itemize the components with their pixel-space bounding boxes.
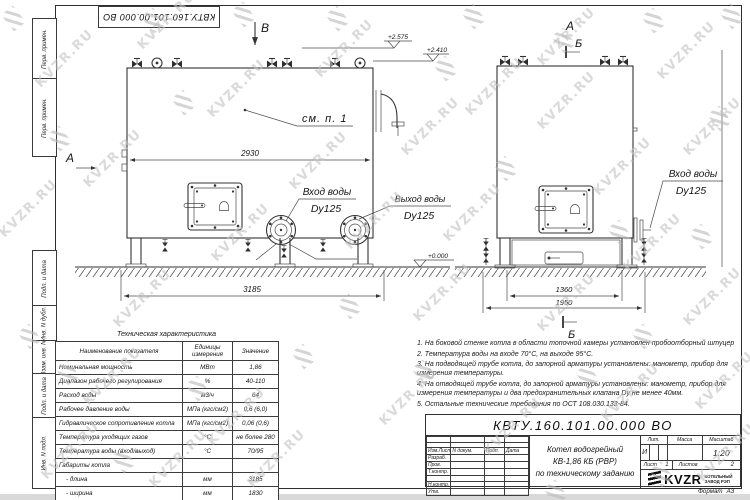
supports-front (126, 238, 373, 267)
document-title-line: по техническому заданию (536, 468, 635, 480)
bracket (122, 150, 127, 157)
water-outlet-flange (341, 216, 370, 245)
margin-cell-4: Инв. N дубл. (32, 305, 57, 342)
drain-valve-icon (320, 240, 326, 252)
valve-icon (518, 57, 528, 66)
margin-label: Взам. инв. N (42, 340, 48, 375)
rev-header: Изм.Лист (427, 448, 451, 455)
cell (233, 459, 279, 473)
format-label: Формат (698, 488, 723, 495)
cell: % (183, 375, 233, 389)
table-row: Номинальная мощностьМВт1,86 (56, 361, 279, 375)
inlet-label: Вход воды (303, 187, 352, 198)
format-value: А3 (727, 488, 735, 495)
dim-2930-label: 2930 (240, 149, 259, 158)
table-row: Габариты котла (56, 459, 279, 473)
margin-cell-3: Подп. и дата (32, 250, 57, 307)
revision-table: Изм.Лист N докум. Подп. Дата Разраб. Про… (426, 436, 529, 496)
role-label: Т.контр. (427, 469, 451, 476)
valve-icon (500, 57, 510, 66)
cell (183, 459, 233, 473)
top-designation-box: КВТУ.160.101.00.000 ВО (98, 6, 220, 28)
cell: мм (183, 473, 233, 487)
valve-icon (600, 57, 610, 66)
elevation-mid: +2.410 (373, 47, 449, 61)
drain-valve-icon (483, 239, 489, 251)
scale-header: Масштаб (703, 436, 740, 444)
technical-notes: 1. На боковой стенке котла в области топ… (417, 339, 741, 410)
rev-header: Подп. (484, 448, 504, 455)
table-row: Температура уходящих газов°Сне более 280 (56, 431, 279, 445)
section-b-marker-bottom: Б (563, 316, 577, 341)
dim-1360-label: 1360 (556, 285, 574, 294)
margin-label: Подп. и дата (42, 377, 48, 415)
view-b-label: В (261, 21, 269, 35)
inlet-label-side: Вход воды (669, 169, 718, 180)
elevation-zero-label: +0.000 (428, 253, 448, 260)
cell: не более 280 (233, 431, 279, 445)
note-line: 4. На отводящей трубе котла, до запорной… (417, 380, 741, 398)
margin-cell-6: Подп. и дата (32, 373, 57, 419)
flue-outlet (376, 90, 404, 136)
table-row: Гидравлическое сопротивление котлаМПа (к… (56, 417, 279, 431)
sheet-value: 1 (665, 462, 668, 468)
cell: 64 (233, 389, 279, 403)
outlet-dn-label: Dy125 (404, 210, 435, 222)
table-row: Диапазон рабочего регулирования%40-110 (56, 375, 279, 389)
tech-table: Наименование показателя Единицы измерени… (55, 341, 279, 500)
view-a-label-front: А (65, 151, 74, 165)
cell: Габариты котла (56, 459, 183, 473)
role-label: Утв. (427, 488, 451, 495)
side-view: А Б (455, 19, 723, 341)
margin-cell-2: Перв. примен. (32, 78, 57, 157)
inlet-dn-label: Dy125 (311, 203, 342, 215)
document-title: Котел водогрейный КВ-1,86 КБ (РВР) по те… (529, 436, 640, 488)
note-line: 1. На боковой стенке котла в области топ… (417, 339, 741, 348)
section-b-marker-top: Б (566, 38, 582, 58)
kvzr-logo-subline: ЗАВОД РЭП (705, 479, 733, 484)
margin-cell-7: Инв. N подл. (32, 417, 57, 489)
inlet-dn-label-side: Dy125 (676, 185, 707, 197)
drawing-sheet: КВТУ.160.101.00.000 ВО Перв. примен. Пер… (0, 0, 750, 500)
tech-col-header: Значение (233, 342, 279, 361)
valve-icon (282, 59, 292, 68)
cell: Диапазон рабочего регулирования (56, 375, 183, 389)
drain-valve-icon (281, 246, 287, 258)
front-view: 2930 В см. п. 1 +2.575 +2.41 (65, 21, 454, 301)
outlet-label: Выход воды (395, 194, 446, 204)
role-label: Разраб. (427, 455, 451, 462)
cell: Номинальная мощность (56, 361, 183, 375)
water-inlet-flange (267, 216, 296, 245)
title-block-right: Лит. Масса Масштаб И 1:20 Лист 1 (641, 436, 740, 488)
format-note: ФорматА3 (698, 488, 738, 495)
cell: м3/ч (183, 389, 233, 403)
table-row: Расход водым3/ч64 (56, 389, 279, 403)
furnace-door-front (184, 183, 242, 230)
margin-label: Подп. и дата (42, 260, 48, 298)
mass-header: Масса (668, 436, 703, 444)
kvzr-logo-subtext: КОТЕЛЬНЫЙ ЗАВОД РЭП (705, 474, 733, 485)
tech-table-title: Техническая характеристика (55, 331, 278, 338)
margin-cell-5: Взам. инв. N (32, 340, 57, 375)
document-designation: КВТУ.160.101.00.000 ВО (426, 415, 740, 436)
supports-side (495, 238, 637, 268)
tech-table-header-row: Наименование показателя Единицы измерени… (56, 342, 279, 361)
scale-value: 1:20 (703, 445, 740, 460)
cell: 0,06 (0,6) (233, 417, 279, 431)
drain-valve-icon (641, 251, 647, 263)
inlet-callout-side: Вход воды Dy125 (650, 169, 723, 228)
cell: °С (183, 445, 233, 459)
sheets-value: 2 (731, 462, 734, 468)
note-line: 5. Остальные технические требования по О… (417, 400, 741, 409)
tech-col-header: Единицы измерения (183, 342, 233, 361)
cell: МПа (кгс/см2) (183, 417, 233, 431)
mass-value (668, 445, 703, 460)
bracket (122, 164, 127, 171)
margin-label: Перв. примен. (42, 98, 48, 138)
drain-valve-icon (162, 240, 168, 252)
margin-label: Инв. N дубл. (42, 306, 48, 341)
table-row: - длинамм3185 (56, 473, 279, 487)
cell: МПа (кгс/см2) (183, 403, 233, 417)
dim-3185-label: 3185 (243, 285, 261, 294)
elevation-mid-label: +2.410 (427, 47, 447, 54)
table-row: Рабочее давление водыМПа (кгс/см2)0,6 (6… (56, 403, 279, 417)
ground-hatch-front (75, 268, 450, 277)
margin-cell-1: Перв. примен. (32, 18, 57, 80)
document-title-line: КВ-1,86 КБ (РВР) (553, 456, 617, 468)
cell: 3185 (233, 473, 279, 487)
cell: мм (183, 487, 233, 500)
section-b-label-top: Б (575, 38, 582, 50)
kvzr-logo-icon (648, 471, 661, 488)
ground-hatch-side (455, 268, 706, 277)
cell: 1830 (233, 487, 279, 500)
drain-valve-icon (245, 240, 251, 252)
note-line: 2. Температура воды на входе 70°С, на вы… (417, 350, 741, 359)
valve-icon (267, 59, 277, 68)
valve-icon (172, 59, 182, 68)
document-title-line: Котел водогрейный (547, 444, 623, 456)
top-designation-text: КВТУ.160.101.00.000 ВО (103, 12, 216, 22)
elevation-high-label: +2.575 (388, 34, 408, 41)
elevation-zero: +0.000 (414, 253, 454, 267)
role-label: Пров. (427, 462, 451, 469)
valve-icon (132, 59, 142, 68)
margin-label: Инв. N подл. (42, 435, 48, 470)
cell: Температура воды (вход/выход) (56, 445, 183, 459)
drain-valve-icon (483, 251, 489, 263)
cell: Расход воды (56, 389, 183, 403)
valve-icon (618, 57, 628, 66)
cell: 1,86 (233, 361, 279, 375)
lit-header: Лит. (641, 436, 668, 444)
tech-col-header: Наименование показателя (56, 342, 183, 361)
cell: °С (183, 431, 233, 445)
see-note-label: см. п. 1 (302, 113, 347, 125)
table-row: - ширинамм1830 (56, 487, 279, 500)
cell: Гидравлическое сопротивление котла (56, 417, 183, 431)
rev-header: Дата (505, 448, 529, 455)
company-logo: KVZR КОТЕЛЬНЫЙ ЗАВОД РЭП (641, 470, 740, 488)
cell: - длина (56, 473, 183, 487)
margin-label: Перв. примен. (42, 29, 48, 69)
lit-value: И (641, 445, 650, 460)
cell: 70/95 (233, 445, 279, 459)
furnace-door-side (535, 186, 593, 233)
sheet-label: Лист (644, 462, 657, 468)
cell: Рабочее давление воды (56, 403, 183, 417)
dim-1950-label: 1950 (556, 298, 574, 307)
valve-icon (330, 59, 340, 68)
title-block: КВТУ.160.101.00.000 ВО Изм.Лист N докум.… (425, 414, 741, 487)
cell: Температура уходящих газов (56, 431, 183, 445)
note-line: 3. На подводящей трубе котла, до запорно… (417, 360, 741, 378)
cell: 0,6 (6,0) (233, 403, 279, 417)
view-a-label-side: А (565, 19, 574, 33)
cell: - ширина (56, 487, 183, 500)
role-label: Н.контр. (427, 481, 451, 488)
sheets-label: Листов (679, 462, 698, 468)
cell: МВт (183, 361, 233, 375)
side-stub (633, 128, 637, 131)
cell: 40-110 (233, 375, 279, 389)
rev-header: N докум. (451, 448, 484, 455)
kvzr-logo-text: KVZR (664, 472, 701, 487)
elevation-high: +2.575 (302, 34, 412, 48)
table-row: Температура воды (вход/выход)°С70/95 (56, 445, 279, 459)
